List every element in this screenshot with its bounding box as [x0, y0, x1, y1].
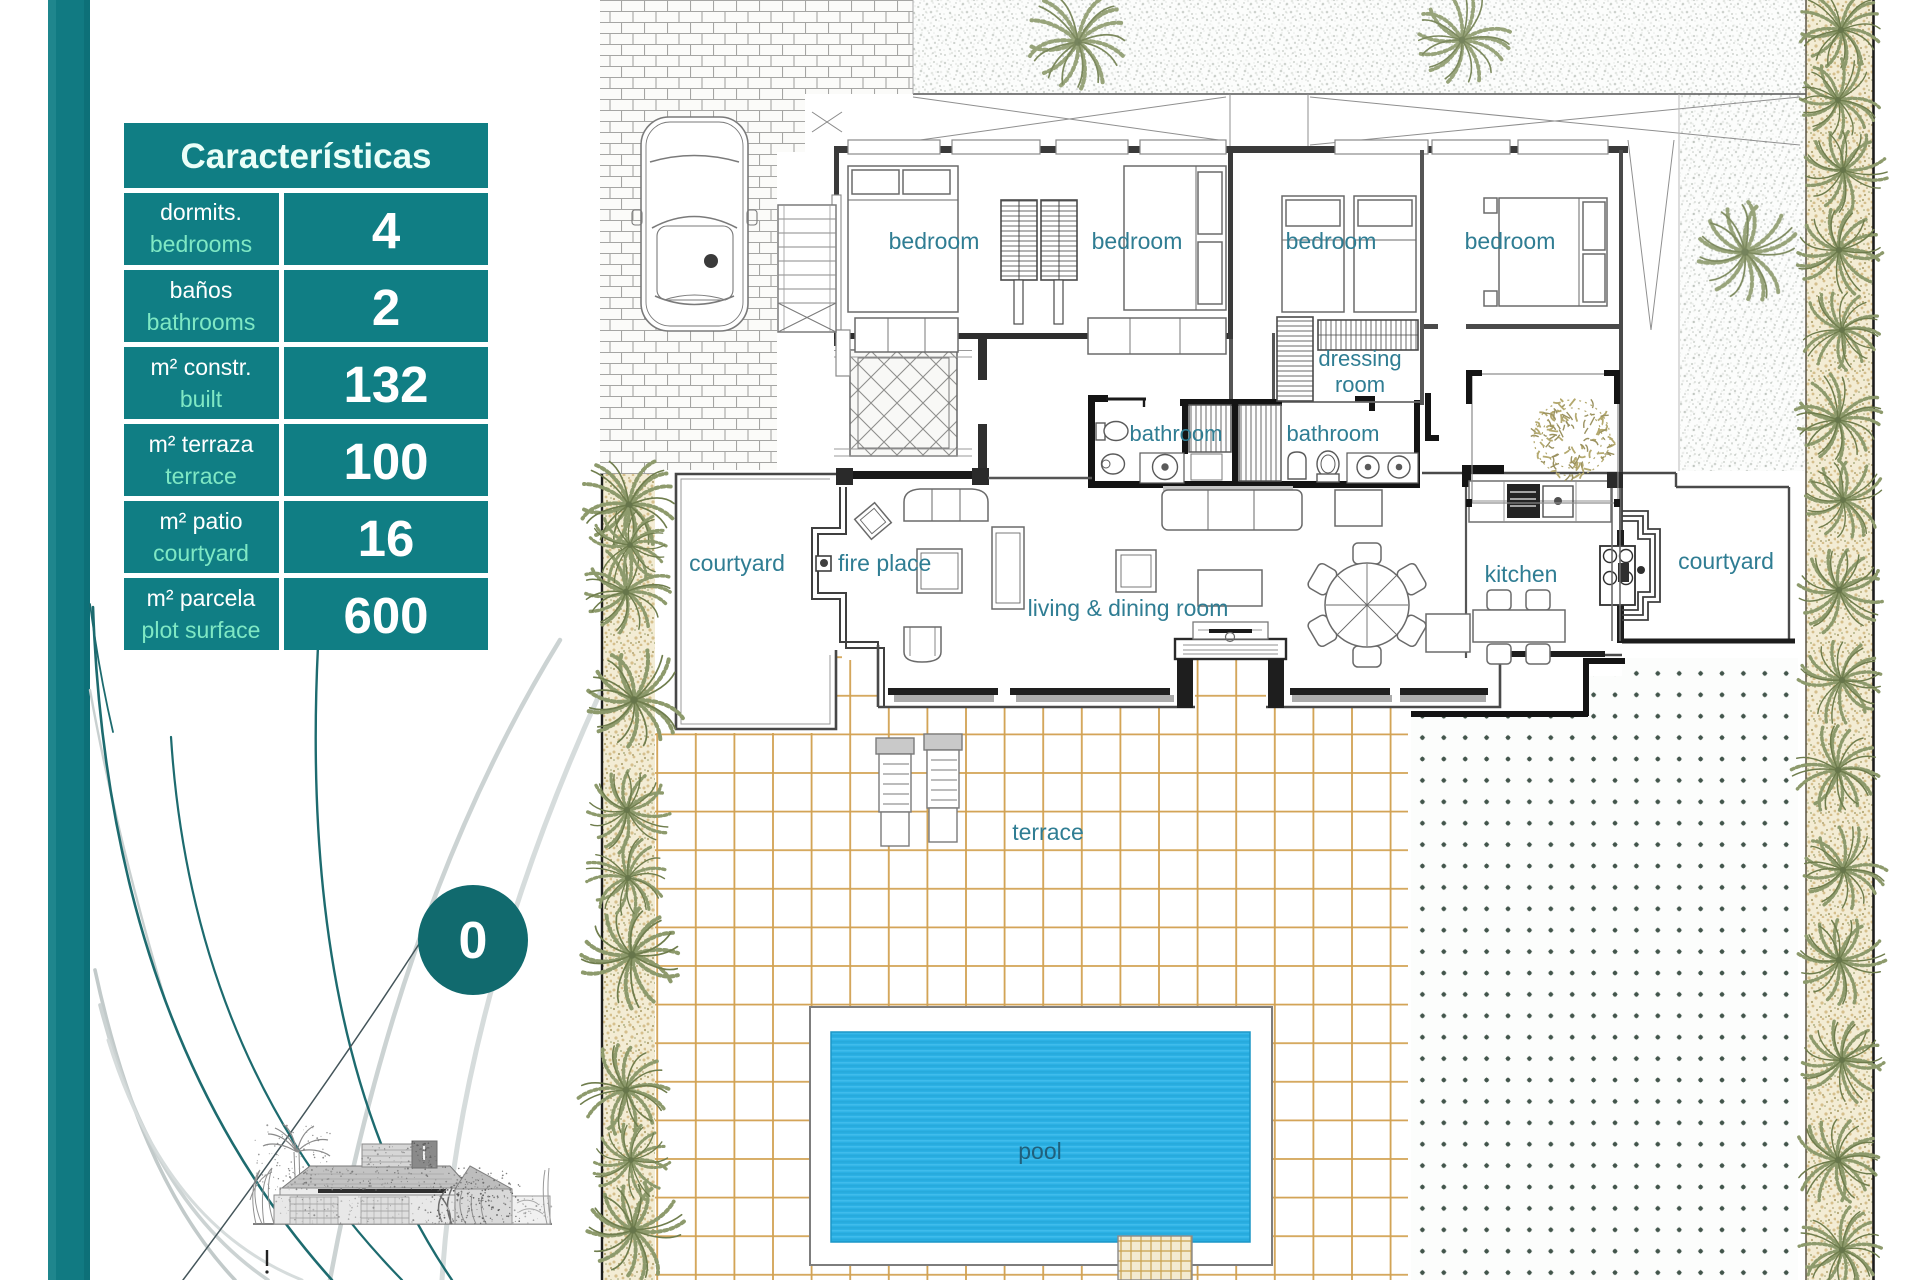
svg-text:dressing: dressing	[1318, 346, 1401, 371]
svg-text:2: 2	[372, 279, 400, 336]
svg-text:bathroom: bathroom	[1130, 421, 1223, 446]
svg-text:fire place: fire place	[838, 550, 931, 576]
svg-text:bathrooms: bathrooms	[147, 309, 256, 335]
svg-text:courtyard: courtyard	[153, 540, 249, 566]
svg-text:kitchen: kitchen	[1485, 561, 1558, 587]
svg-text:m² terraza: m² terraza	[149, 431, 254, 457]
svg-text:pool: pool	[1018, 1138, 1061, 1164]
svg-text:built: built	[180, 386, 223, 412]
svg-text:dormits.: dormits.	[160, 199, 242, 225]
svg-text:plot surface: plot surface	[142, 617, 261, 643]
svg-text:m² parcela: m² parcela	[147, 585, 256, 611]
svg-text:100: 100	[343, 433, 428, 490]
svg-text:bedroom: bedroom	[1092, 228, 1183, 254]
svg-text:terrace: terrace	[165, 463, 237, 489]
svg-text:courtyard: courtyard	[1678, 548, 1774, 574]
svg-text:baños: baños	[170, 277, 233, 303]
svg-text:Características: Características	[181, 137, 432, 176]
svg-text:bedroom: bedroom	[1465, 228, 1556, 254]
svg-text:bathroom: bathroom	[1287, 421, 1380, 446]
svg-text:terrace: terrace	[1012, 819, 1084, 845]
svg-text:m² patio: m² patio	[159, 508, 242, 534]
svg-text:0: 0	[459, 912, 488, 970]
svg-text:4: 4	[372, 202, 401, 259]
svg-text:courtyard: courtyard	[689, 550, 785, 576]
svg-text:600: 600	[343, 587, 428, 644]
svg-text:16: 16	[358, 510, 415, 567]
svg-text:bedroom: bedroom	[1286, 228, 1377, 254]
svg-text:bedroom: bedroom	[889, 228, 980, 254]
svg-text:132: 132	[343, 356, 428, 413]
svg-text:m² constr.: m² constr.	[151, 354, 252, 380]
svg-text:living & dining room: living & dining room	[1028, 595, 1229, 621]
svg-text:room: room	[1335, 372, 1385, 397]
svg-text:bedrooms: bedrooms	[150, 231, 252, 257]
